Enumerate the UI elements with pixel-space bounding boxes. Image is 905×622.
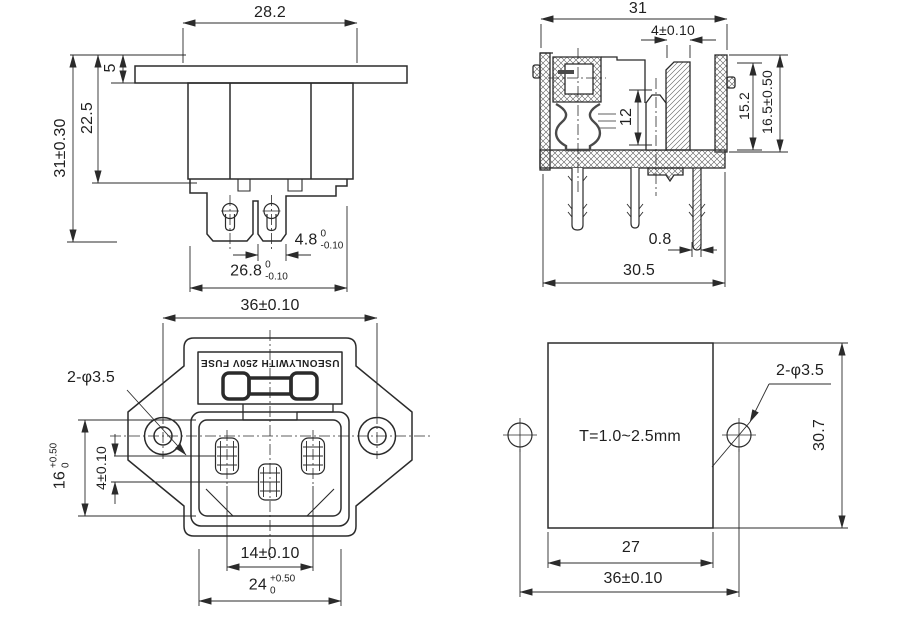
side-flange bbox=[135, 66, 407, 83]
dim-bottom-width: 30.5 bbox=[623, 263, 655, 279]
dim-terminal-width: 4.80-0.10 bbox=[295, 229, 344, 252]
dim-overall-height: 16.5±0.50 bbox=[760, 70, 774, 134]
fuse-holder-section bbox=[553, 57, 601, 102]
dim-contact-length: 12 bbox=[619, 108, 635, 126]
fuse-marking-text: USEONLYWITH 250V FUSE bbox=[200, 357, 339, 367]
dim-cutout-holes: 2-φ3.5 bbox=[776, 363, 824, 379]
dim-opening-height: 16+0.500 bbox=[49, 443, 72, 490]
dim-rib-width: 4±0.10 bbox=[651, 23, 695, 37]
dim-cutout-height: 30.7 bbox=[812, 419, 828, 451]
dim-cutout-width: 27 bbox=[622, 540, 640, 556]
section-base bbox=[540, 150, 725, 168]
dim-opening-width: 24+0.500 bbox=[249, 574, 296, 597]
dim-cutout-hole-spacing: 36±0.10 bbox=[603, 571, 662, 587]
dim-earth-offset: 4±0.10 bbox=[94, 446, 108, 490]
dim-leg-thickness: 0.8 bbox=[649, 232, 672, 248]
dim-pin-spacing: 14±0.10 bbox=[240, 546, 299, 562]
engineering-drawing-page: 28.2 5 22.5 31±0.30 4.80-0.10 26.80-0.10… bbox=[0, 0, 905, 622]
side-body bbox=[188, 83, 353, 179]
dim-cavity-depth: 15.2 bbox=[737, 92, 751, 120]
panel-cutout-view bbox=[503, 343, 848, 597]
dim-lower-width: 26.80-0.10 bbox=[230, 260, 288, 283]
section-center-rib bbox=[666, 62, 690, 150]
dim-hole-spacing: 36±0.10 bbox=[240, 298, 299, 314]
panel-thickness-note: T=1.0~2.5mm bbox=[579, 429, 681, 445]
dim-overall-depth: 31±0.30 bbox=[53, 118, 69, 177]
dim-mounting-holes: 2-φ3.5 bbox=[67, 370, 115, 386]
dim-section-top-width: 31 bbox=[629, 1, 647, 17]
solder-legs bbox=[572, 168, 701, 250]
dim-top-width: 28.2 bbox=[254, 5, 286, 21]
dim-flange-thickness: 5 bbox=[103, 63, 119, 72]
dim-body-depth: 22.5 bbox=[80, 102, 96, 134]
section-left-lip bbox=[533, 65, 540, 78]
cutout-hole-left bbox=[503, 418, 537, 452]
section-right-lip bbox=[727, 77, 735, 88]
section-center-boss bbox=[648, 168, 683, 181]
section-right-wall bbox=[715, 55, 727, 152]
